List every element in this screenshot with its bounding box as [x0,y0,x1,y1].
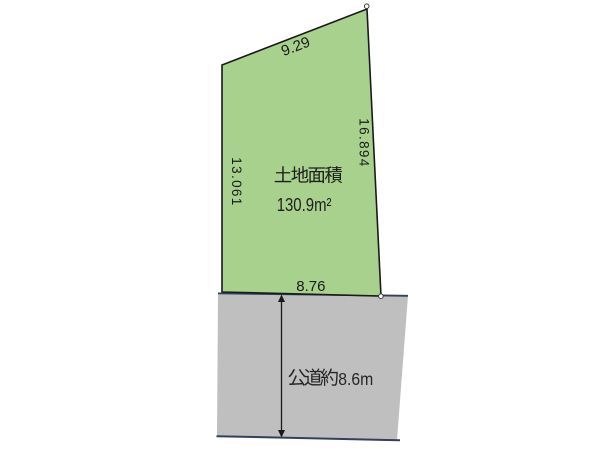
svg-text:16.894: 16.894 [356,118,371,166]
svg-text:8.6m: 8.6m [338,369,373,389]
svg-text:130.9m²: 130.9m² [277,194,332,215]
svg-text:13.061: 13.061 [229,157,244,205]
svg-text:8.76: 8.76 [296,278,325,295]
